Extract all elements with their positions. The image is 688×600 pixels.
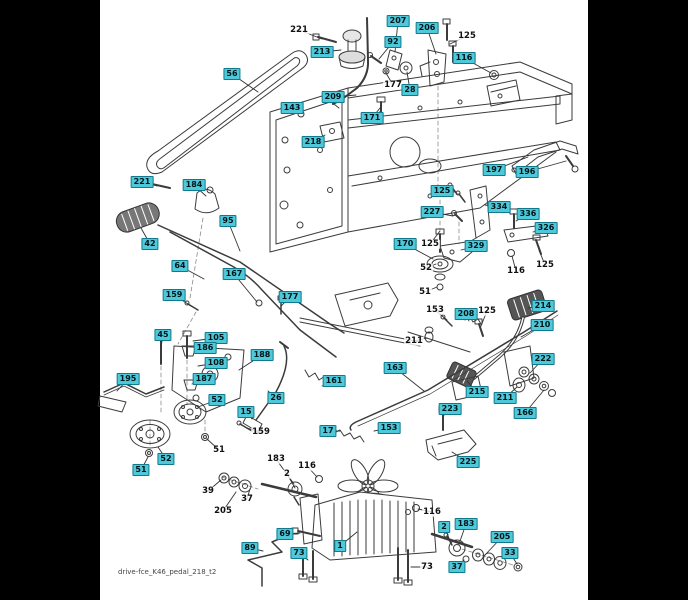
callout-28-9: 28	[401, 84, 418, 96]
callout-177-8: 177	[383, 81, 403, 90]
callout-208-39: 208	[455, 308, 478, 320]
callout-39-69: 39	[201, 487, 215, 496]
callout-187-49: 187	[193, 373, 216, 385]
callout-205-76: 205	[491, 531, 514, 543]
callout-196-15: 196	[516, 166, 539, 178]
callout-52-63: 52	[157, 453, 174, 465]
callout-329-27: 329	[465, 240, 488, 252]
callout-69-75: 69	[276, 528, 293, 540]
callout-166-58: 166	[514, 407, 537, 419]
callout-95-22: 95	[219, 215, 236, 227]
callout-52-55: 52	[208, 394, 225, 406]
callout-37-70: 37	[240, 495, 254, 504]
callout-116-72: 116	[422, 508, 442, 517]
callout-336-21: 336	[517, 208, 540, 220]
callout-153-59: 153	[378, 422, 401, 434]
callout-116-66: 116	[297, 462, 317, 471]
callout-37-81: 37	[448, 561, 465, 573]
callout-211-43: 211	[404, 337, 424, 346]
callout-186-44: 186	[194, 342, 217, 354]
callout-184-17: 184	[183, 179, 206, 191]
callout-215-52: 215	[466, 386, 489, 398]
callout-153-37: 153	[425, 306, 445, 315]
callout-116-6: 116	[453, 52, 476, 64]
callout-73-82: 73	[420, 563, 434, 572]
callout-56-7: 56	[223, 68, 240, 80]
callout-161-51: 161	[323, 375, 346, 387]
callout-207-2: 207	[387, 15, 410, 27]
callout-171-12: 171	[361, 112, 384, 124]
callout-225-65: 225	[457, 456, 480, 468]
callout-209-10: 209	[322, 91, 345, 103]
callout-326-23: 326	[535, 222, 558, 234]
callout-92-3: 92	[384, 36, 401, 48]
callout-222-46: 222	[532, 353, 555, 365]
callout-213-1: 213	[311, 46, 334, 58]
callout-52-30: 52	[419, 264, 433, 273]
callout-214-36: 214	[532, 300, 555, 312]
callout-227-20: 227	[421, 206, 444, 218]
callout-218-13: 218	[302, 136, 325, 148]
callout-211-54: 211	[494, 392, 517, 404]
callout-223-56: 223	[439, 403, 462, 415]
callout-1-77: 1	[334, 540, 346, 552]
callout-89-78: 89	[241, 542, 258, 554]
callout-125-28: 125	[535, 261, 555, 270]
callout-197-14: 197	[483, 164, 506, 176]
callout-2-74: 2	[438, 521, 450, 533]
callout-159-34: 159	[163, 289, 186, 301]
callout-125-18: 125	[431, 185, 454, 197]
callout-51-62: 51	[212, 446, 226, 455]
callout-183-64: 183	[266, 455, 286, 464]
callout-177-35: 177	[279, 291, 302, 303]
callout-33-79: 33	[501, 547, 518, 559]
callout-layer: 2212132079220612511656177282091431712181…	[0, 0, 688, 600]
callout-116-31: 116	[506, 267, 526, 276]
callout-206-4: 206	[416, 22, 439, 34]
callout-125-5: 125	[457, 32, 477, 41]
callout-163-48: 163	[384, 362, 407, 374]
callout-17-60: 17	[319, 425, 336, 437]
callout-183-73: 183	[455, 518, 478, 530]
callout-195-50: 195	[117, 373, 140, 385]
callout-15-57: 15	[237, 406, 254, 418]
parts-diagram-screenshot: 2212132079220612511656177282091431712181…	[0, 0, 688, 600]
callout-170-25: 170	[394, 238, 417, 250]
callout-167-32: 167	[223, 268, 246, 280]
callout-51-33: 51	[418, 288, 432, 297]
callout-159-61: 159	[251, 428, 271, 437]
callout-108-47: 108	[205, 357, 228, 369]
callout-221-0: 221	[289, 26, 309, 35]
callout-42-24: 42	[141, 238, 158, 250]
diagram-filename: drive-fce_K46_pedal_218_t2	[118, 568, 216, 576]
callout-45-41: 45	[154, 329, 171, 341]
callout-188-45: 188	[251, 349, 274, 361]
callout-125-38: 125	[477, 307, 497, 316]
callout-73-80: 73	[290, 547, 307, 559]
callout-64-29: 64	[171, 260, 188, 272]
callout-210-40: 210	[531, 319, 554, 331]
callout-143-11: 143	[281, 102, 304, 114]
callout-334-19: 334	[488, 201, 511, 213]
callout-51-67: 51	[132, 464, 149, 476]
callout-221-16: 221	[131, 176, 154, 188]
callout-205-71: 205	[213, 507, 233, 516]
callout-26-53: 26	[267, 392, 284, 404]
callout-2-68: 2	[283, 470, 291, 479]
callout-125-26: 125	[420, 240, 440, 249]
